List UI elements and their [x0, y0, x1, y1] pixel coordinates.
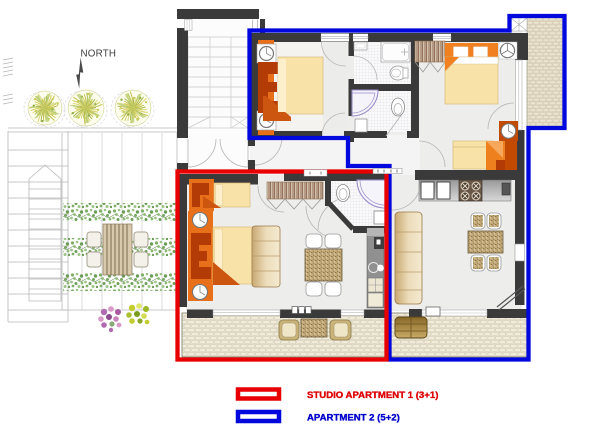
svg-text:NORTH: NORTH [81, 49, 117, 60]
svg-text:STUDIO APARTMENT 1 (3+1): STUDIO APARTMENT 1 (3+1) [307, 390, 438, 401]
svg-text:APARTMENT 2 (5+2): APARTMENT 2 (5+2) [307, 413, 400, 424]
